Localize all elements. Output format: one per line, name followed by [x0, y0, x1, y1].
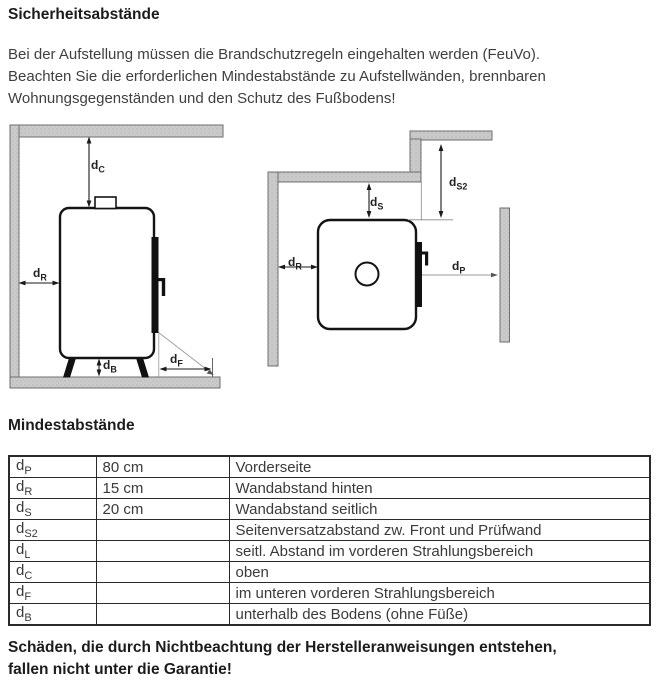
desc-cell: Wandabstand hinten	[229, 478, 650, 499]
section-title: Mindestabstände	[8, 417, 135, 435]
value-cell	[96, 541, 229, 562]
intro-paragraph: Bei der Aufstellung müssen die Brandschu…	[8, 44, 546, 110]
value-cell	[96, 583, 229, 604]
top-view-diagram	[255, 120, 525, 370]
stove-leg-left	[63, 358, 76, 378]
label-dc: dC	[91, 159, 105, 175]
door-handle	[425, 252, 428, 266]
warning-line: fallen nicht unter die Garantie!	[8, 659, 557, 680]
desc-cell: Vorderseite	[229, 456, 650, 478]
value-cell: 15 cm	[96, 478, 229, 499]
desc-cell: im unteren vorderen Strahlungsbereich	[229, 583, 650, 604]
min-distances-table: dP 80 cm Vorderseite dR 15 cm Wandabstan…	[8, 455, 651, 626]
stove-door-top	[416, 242, 422, 307]
value-cell	[96, 520, 229, 541]
arrowhead	[97, 370, 102, 377]
arrowhead	[439, 211, 444, 218]
ceiling	[10, 125, 223, 137]
test-wall	[500, 208, 510, 342]
rear-wall	[268, 172, 278, 366]
value-cell	[96, 562, 229, 583]
warranty-warning: Schäden, die durch Nichtbeachtung der He…	[8, 637, 557, 680]
page-title: Sicherheitsabstände	[8, 6, 160, 24]
value-cell	[96, 604, 229, 626]
symbol-cell: dP	[9, 456, 96, 478]
arrowhead	[97, 359, 102, 366]
desc-cell: unterhalb des Bodens (ohne Füße)	[229, 604, 650, 626]
warning-line: Schäden, die durch Nichtbeachtung der He…	[8, 637, 557, 659]
table-row: dS2 Seitenversatzabstand zw. Front und P…	[9, 520, 650, 541]
symbol-cell: dB	[9, 604, 96, 626]
desc-cell: Seitenversatzabstand zw. Front und Prüfw…	[229, 520, 650, 541]
symbol-cell: dC	[9, 562, 96, 583]
radiation-diagonal	[159, 333, 211, 373]
arrowhead	[491, 273, 498, 278]
intro-line: Bei der Aufstellung müssen die Brandschu…	[8, 44, 546, 66]
table-row: dC oben	[9, 562, 650, 583]
desc-cell: oben	[229, 562, 650, 583]
arrowhead	[439, 144, 444, 151]
symbol-cell: dF	[9, 583, 96, 604]
label-dr-top: dR	[288, 256, 302, 272]
label-ds2: dS2	[449, 176, 467, 192]
side-wall	[268, 172, 421, 182]
door-handle	[162, 278, 165, 296]
symbol-cell: dL	[9, 541, 96, 562]
intro-line: Beachten Sie die erforderlichen Mindesta…	[8, 66, 546, 88]
stove-body	[60, 208, 154, 358]
desc-cell: Wandabstand seitlich	[229, 499, 650, 520]
flue-outlet	[356, 263, 379, 286]
rear-wall	[10, 125, 19, 388]
flue-stub	[95, 197, 116, 209]
table-row: dB unterhalb des Bodens (ohne Füße)	[9, 604, 650, 626]
arrowhead	[278, 265, 285, 270]
safety-distance-diagrams: dC dR dB dF dS dS2 dR dP	[0, 120, 669, 412]
symbol-cell: dR	[9, 478, 96, 499]
label-dr-side: dR	[33, 267, 47, 283]
side-view-diagram	[0, 120, 230, 392]
arrowhead	[87, 201, 92, 208]
value-cell: 20 cm	[96, 499, 229, 520]
label-db: dB	[103, 359, 117, 375]
desc-cell: seitl. Abstand im vorderen Strahlungsber…	[229, 541, 650, 562]
arrowhead	[160, 367, 167, 372]
arrowhead	[87, 137, 92, 144]
stove-door	[152, 237, 159, 333]
label-dp: dP	[452, 260, 465, 276]
offset-wall	[410, 131, 492, 140]
stove-leg-right	[136, 358, 149, 378]
value-cell: 80 cm	[96, 456, 229, 478]
manual-page: Sicherheitsabstände Bei der Aufstellung …	[0, 0, 669, 680]
table-row: dS 20 cm Wandabstand seitlich	[9, 499, 650, 520]
arrowhead	[19, 281, 26, 286]
label-ds: dS	[370, 196, 383, 212]
floor	[10, 377, 220, 388]
label-df: dF	[170, 353, 183, 369]
symbol-cell: dS	[9, 499, 96, 520]
table-row: dP 80 cm Vorderseite	[9, 456, 650, 478]
offset-wall-stub	[410, 139, 421, 174]
symbol-cell: dS2	[9, 520, 96, 541]
table-row: dL seitl. Abstand im vorderen Strahlungs…	[9, 541, 650, 562]
table-row: dR 15 cm Wandabstand hinten	[9, 478, 650, 499]
arrowhead	[367, 183, 372, 190]
arrowhead	[53, 281, 60, 286]
intro-line: Wohnungsgegenständen und den Schutz des …	[8, 88, 546, 110]
table-row: dF im unteren vorderen Strahlungsbereich	[9, 583, 650, 604]
